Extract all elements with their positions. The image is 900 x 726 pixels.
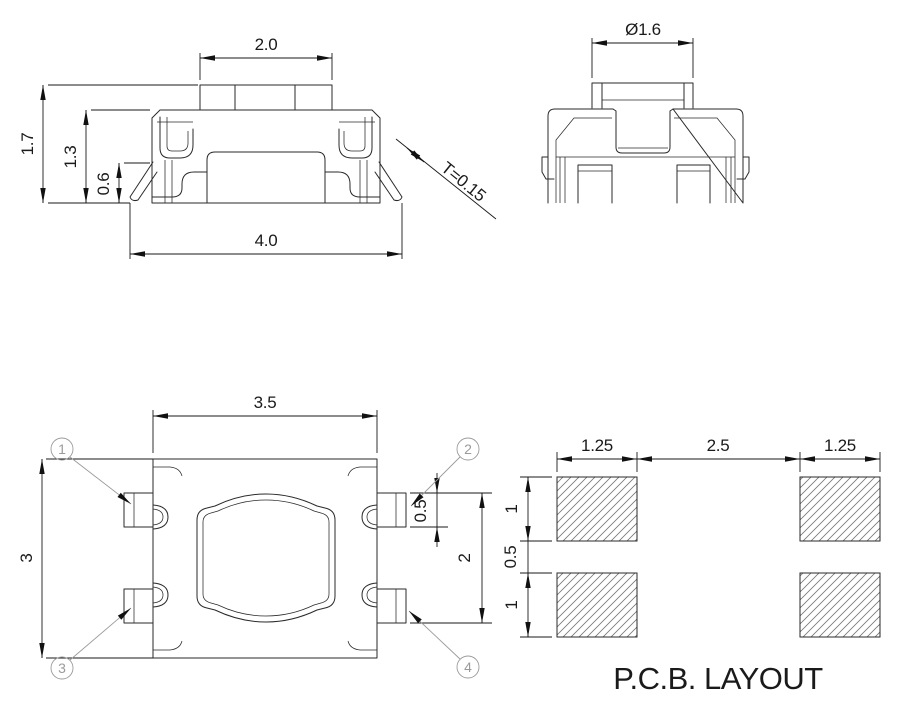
- callout-4-number: 4: [464, 659, 472, 675]
- pcb-pad-top-left: [557, 477, 637, 541]
- dim-body-width: 3.5: [254, 393, 277, 412]
- pcb-layout: 1.25 2.5 1.25 1 0.5 1 P.C.B. LAYOUT: [501, 436, 880, 696]
- dim-pad-gap: 2.5: [707, 436, 730, 455]
- dim-total-height: 1.7: [18, 133, 37, 156]
- dim-thickness: T=0.15: [437, 158, 489, 205]
- side-view: Ø1.6: [542, 20, 749, 203]
- pcb-layout-title: P.C.B. LAYOUT: [613, 661, 823, 696]
- drawing-canvas: 2.0 1.7 1.3 0.6 4.0 T=0.15: [0, 0, 900, 726]
- technical-drawing-page: 2.0 1.7 1.3 0.6 4.0 T=0.15: [0, 0, 900, 726]
- pcb-pad-top-right: [800, 477, 880, 541]
- top-view: 3.5 3 0.5 2 1 2 3 4: [17, 393, 492, 679]
- front-view: 2.0 1.7 1.3 0.6 4.0 T=0.15: [18, 35, 496, 259]
- dim-body-height: 1.3: [61, 146, 80, 169]
- dim-pad-width-left: 1.25: [581, 436, 613, 455]
- dim-button-diameter: Ø1.6: [625, 20, 661, 39]
- pcb-pad-bottom-left: [557, 573, 637, 637]
- dim-terminal-height: 0.6: [94, 173, 113, 196]
- dim-pad-height-top: 1: [502, 504, 521, 513]
- pcb-pad-bottom-right: [800, 573, 880, 637]
- dim-pad-width-right: 1.25: [824, 436, 856, 455]
- dim-total-width: 4.0: [255, 231, 278, 250]
- callout-1-number: 1: [58, 441, 66, 457]
- callout-3-number: 3: [58, 660, 66, 676]
- dim-row-gap: 0.5: [501, 546, 520, 569]
- dim-body-depth: 3: [17, 553, 36, 562]
- callout-2-number: 2: [464, 441, 472, 457]
- dim-terminal-span: 2: [455, 553, 474, 562]
- dim-pad-height-bottom: 1: [502, 600, 521, 609]
- dim-top-width: 2.0: [255, 35, 278, 54]
